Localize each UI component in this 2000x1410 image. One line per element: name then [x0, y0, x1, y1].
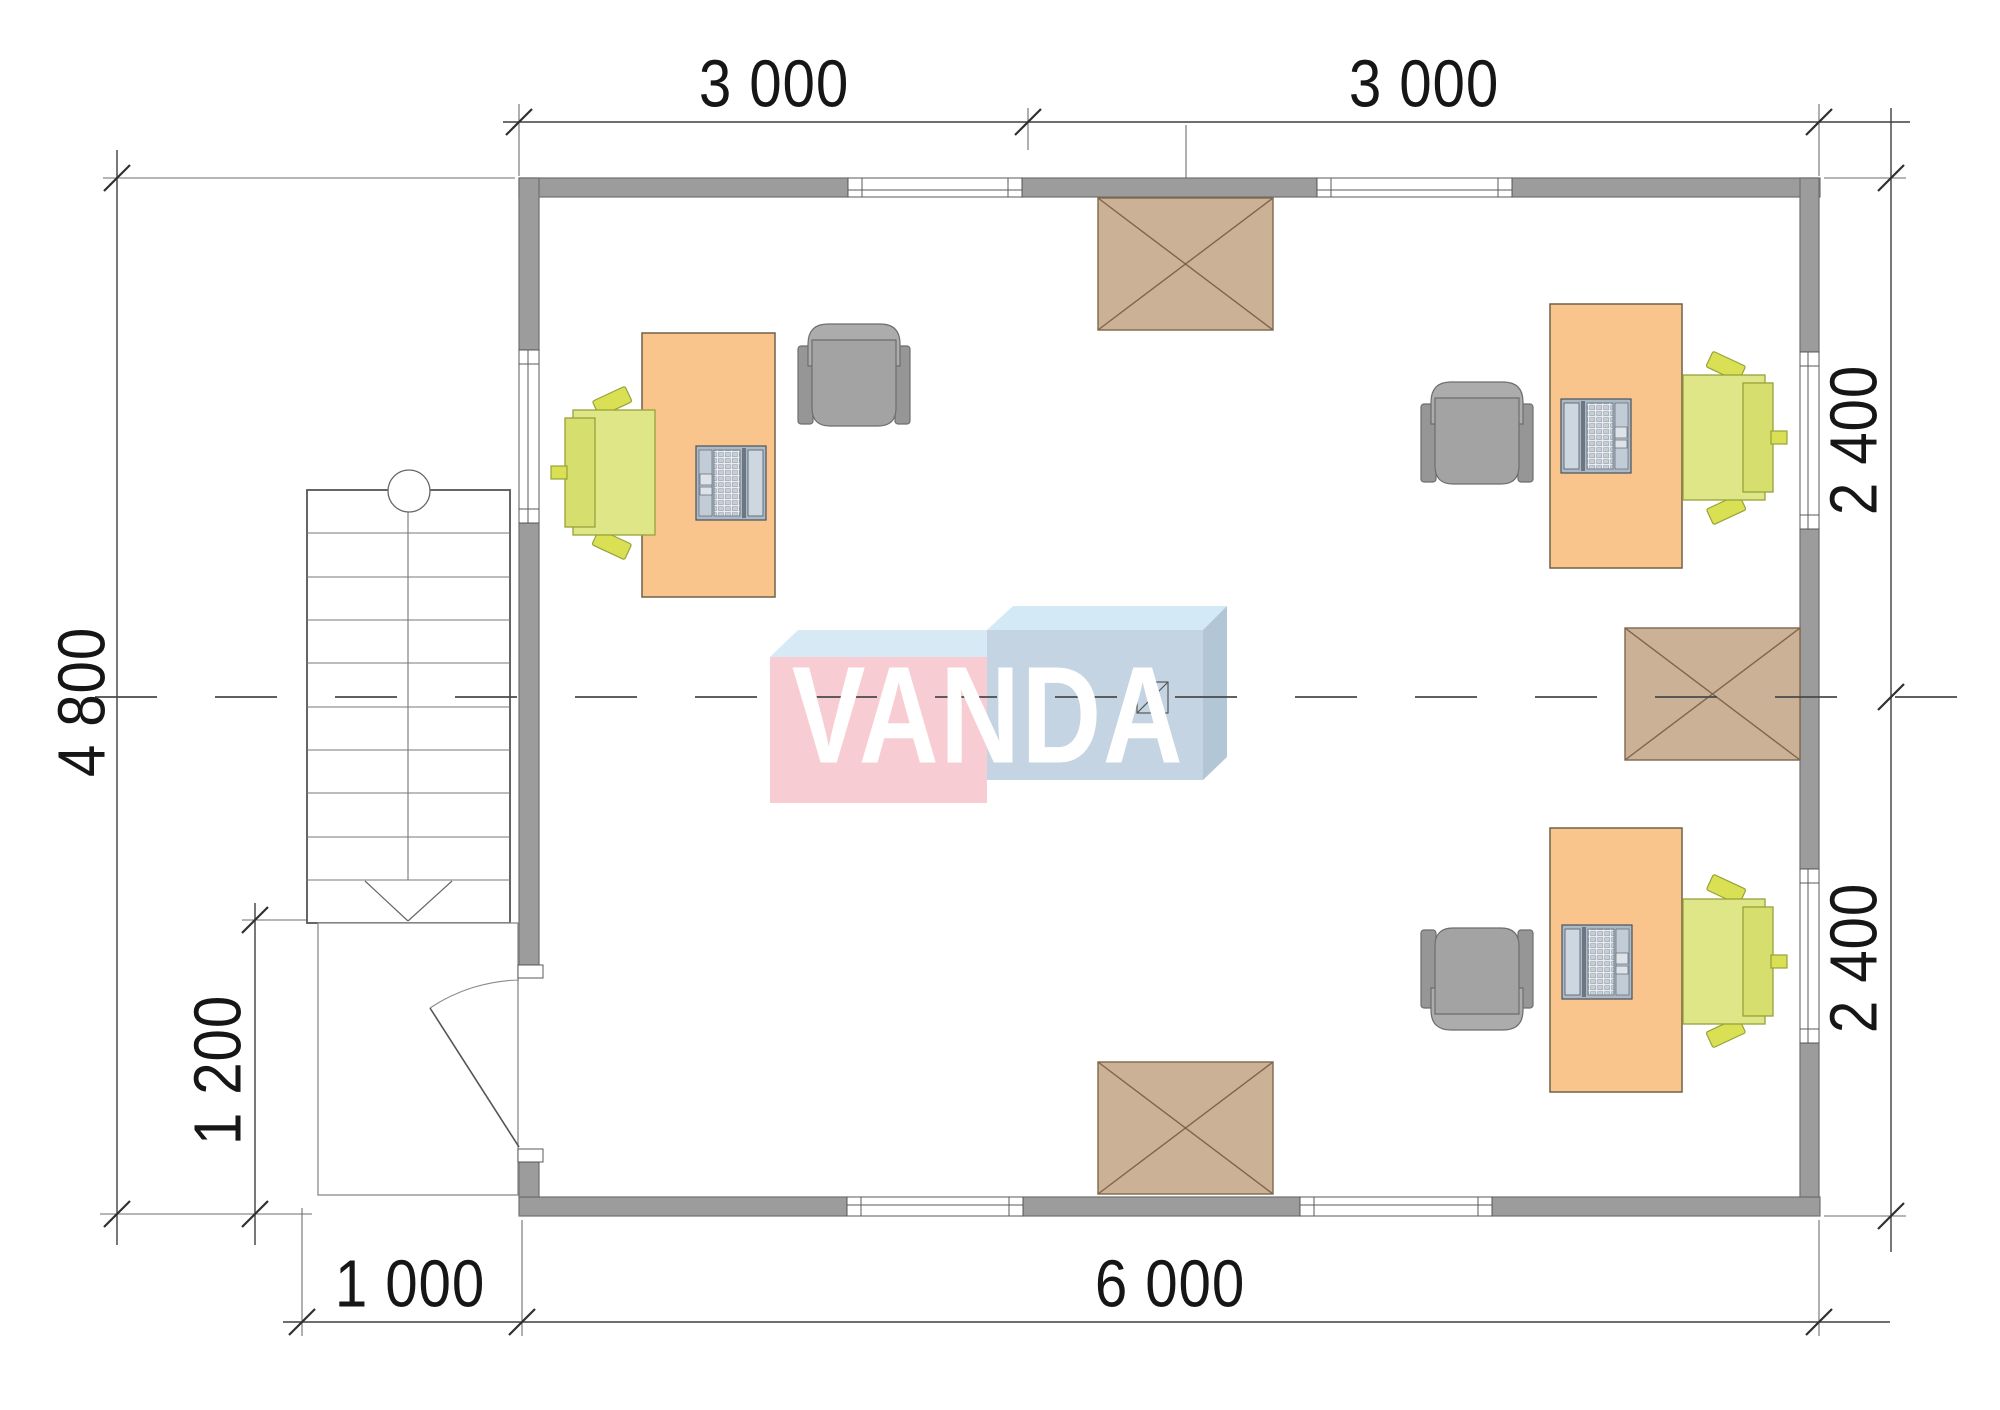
- logo-blue-box-side: [1203, 606, 1227, 780]
- window-left: [519, 350, 539, 523]
- wall-right-upper-segment: [1800, 178, 1819, 352]
- brand-watermark-text: VANDA: [792, 637, 1184, 796]
- desk-chair-top-left: [551, 386, 655, 560]
- entry-porch: [318, 923, 518, 1195]
- wall-left-upper-segment: [519, 178, 539, 350]
- door-jamb-top: [518, 965, 543, 978]
- window-top-right: [1317, 178, 1512, 197]
- dimension-label-top-right: 3 000: [1349, 46, 1499, 123]
- armchair-top-left: [798, 324, 910, 426]
- dimension-label-right-upper: 2 400: [1816, 365, 1893, 515]
- dimension-label-porch-width: 1 000: [335, 1246, 485, 1323]
- window-top-left: [848, 178, 1022, 197]
- logo-blue-box-top: [987, 606, 1227, 630]
- hatched-block-top: [1098, 198, 1273, 330]
- dimension-label-bottom-overall: 6 000: [1095, 1246, 1245, 1323]
- wall-top-right-segment: [1512, 178, 1820, 197]
- dimension-label-left-overall: 4 800: [44, 627, 121, 777]
- laptop-top-right: [1561, 399, 1631, 473]
- stair-start-circle: [388, 470, 430, 512]
- hatched-block-right: [1625, 628, 1800, 760]
- wall-bottom-right-segment: [1492, 1197, 1820, 1216]
- wall-top-middle-segment: [1022, 178, 1317, 197]
- armchair-top-right: [1421, 382, 1533, 484]
- hatched-block-bottom: [1098, 1062, 1273, 1194]
- wall-right-middle-segment: [1800, 529, 1819, 869]
- wall-right-lower-segment: [1800, 1043, 1819, 1197]
- laptop-top-left: [696, 446, 766, 520]
- wall-top-left-segment: [519, 178, 848, 197]
- window-bottom-right: [1300, 1197, 1492, 1216]
- wall-left-middle-segment: [519, 523, 539, 965]
- floor-plan-canvas: 3 000 3 000 2 400 2 400 4 800 1 200 1 00…: [0, 0, 2000, 1410]
- wall-bottom-middle-segment: [1023, 1197, 1300, 1216]
- wall-left-lower-segment: [519, 1162, 539, 1197]
- dimension-label-porch-height: 1 200: [180, 995, 257, 1145]
- laptop-bottom-right: [1562, 925, 1632, 999]
- wall-bottom-left-segment: [519, 1197, 847, 1216]
- dimension-label-right-lower: 2 400: [1816, 883, 1893, 1033]
- door-jamb-bottom: [518, 1149, 543, 1162]
- window-bottom-left: [847, 1197, 1023, 1216]
- dimension-label-top-left: 3 000: [699, 46, 849, 123]
- desk-chair-top-right: [1683, 351, 1787, 525]
- desk-chair-bottom-right: [1683, 874, 1787, 1048]
- armchair-bottom-right: [1421, 928, 1533, 1030]
